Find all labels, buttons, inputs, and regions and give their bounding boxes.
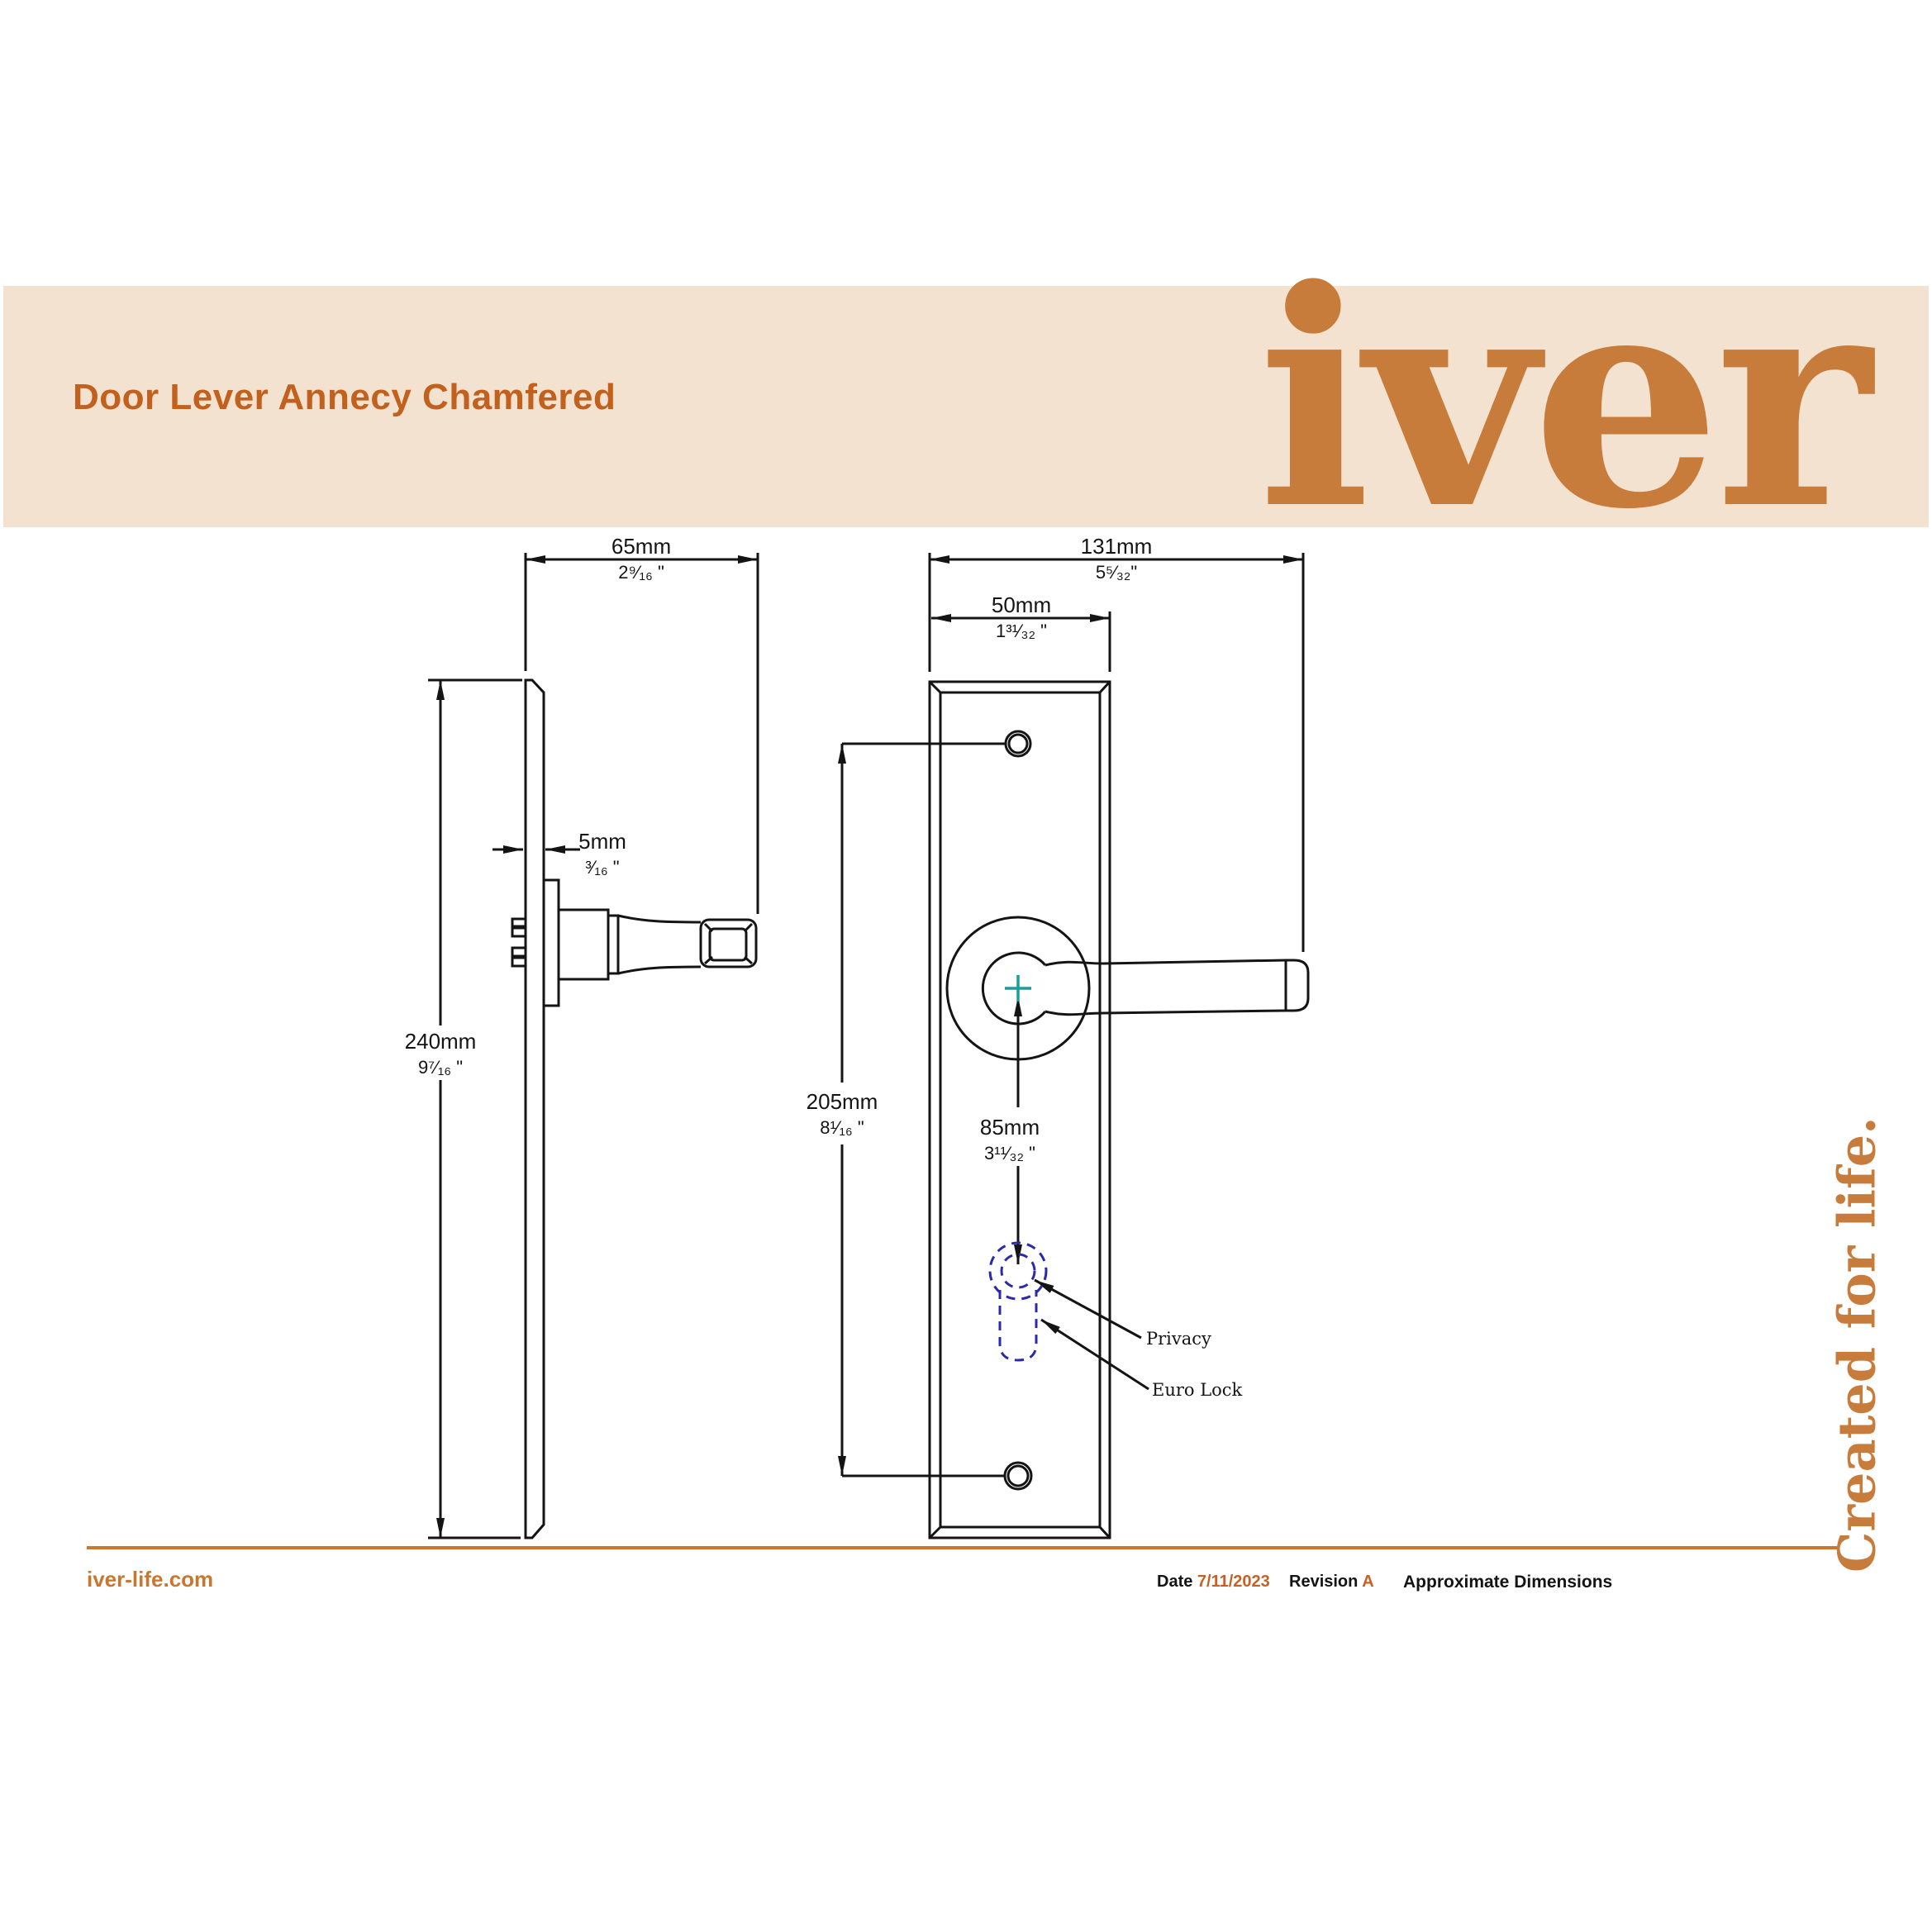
backplate-corner-miters [930, 682, 1110, 1538]
bottom-screw-inner [1008, 1466, 1028, 1486]
spec-sheet-page: Door Lever Annecy Chamfered iver [0, 0, 1932, 1932]
fixing-screws-side [512, 919, 526, 966]
top-screw-inner [1009, 735, 1027, 753]
dim-label-plate-width: 50mm 1³¹⁄₃₂ " [992, 592, 1051, 643]
footer-note: Approximate Dimensions [1403, 1573, 1612, 1592]
brand-tagline: Created for life. [1827, 1135, 1887, 1573]
technical-drawing [0, 0, 1932, 1932]
backplate-front-outer [930, 682, 1110, 1538]
backplate-side-profile [526, 680, 544, 1538]
grip-end-inner [710, 929, 746, 960]
callout-privacy: Privacy [1146, 1329, 1211, 1349]
euro-cylinder-stem [1000, 1290, 1036, 1360]
dim-label-overall-width: 131mm 5⁵⁄₃₂" [1081, 533, 1153, 584]
backplate-front-inner [940, 692, 1100, 1527]
date-label: Date [1157, 1573, 1192, 1591]
neck-side-top [618, 916, 701, 922]
lever-end-cap [1286, 960, 1308, 1011]
centre-cross [1005, 975, 1031, 1002]
footer-rule [87, 1546, 1839, 1549]
date-value: 7/11/2023 [1197, 1573, 1270, 1591]
callout-euro-lock: Euro Lock [1152, 1380, 1242, 1400]
lever-bottom-edge [1045, 1011, 1286, 1015]
revision-label: Revision [1289, 1573, 1358, 1591]
leader-privacy [1035, 1280, 1141, 1338]
dim-label-lock-centre: 85mm 3¹¹⁄₃₂ " [973, 1113, 1046, 1166]
spacer-side [608, 916, 618, 973]
website-link[interactable]: iver-life.com [87, 1567, 213, 1592]
rose-side [544, 880, 559, 1006]
footer-date: Date 7/11/2023 [1157, 1573, 1270, 1592]
dim-label-plate-depth: 65mm 2⁹⁄₁₆ " [611, 533, 671, 584]
dim-label-screw-centres: 205mm 8¹⁄₁₆ " [800, 1087, 885, 1140]
stem-side [559, 910, 608, 979]
dim-label-plate-thickness: 5mm ³⁄₁₆ " [578, 828, 626, 879]
lever-top-edge [1045, 960, 1286, 965]
neck-side-bottom [618, 967, 701, 973]
leader-euro-lock [1041, 1320, 1149, 1389]
footer-revision: Revision A [1289, 1573, 1374, 1592]
revision-value: A [1362, 1573, 1373, 1591]
dim-label-plate-height: 240mm 9⁷⁄₁₆ " [398, 1027, 483, 1080]
